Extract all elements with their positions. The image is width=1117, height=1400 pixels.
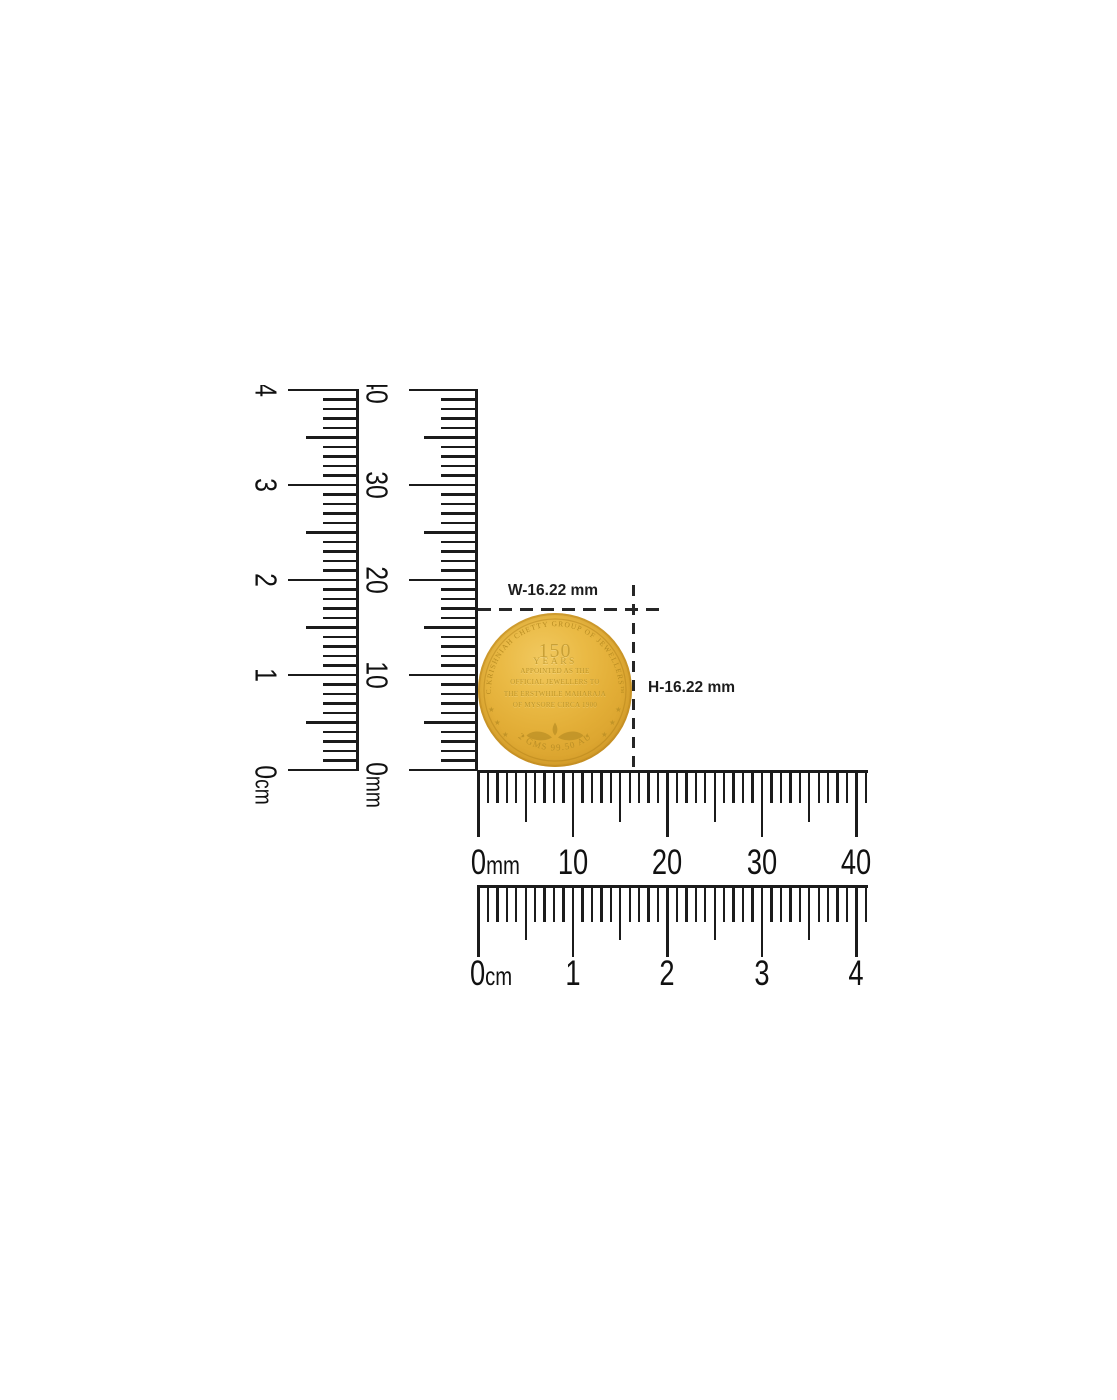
- ruler-tick: [685, 770, 687, 803]
- ruler-tick: [441, 408, 478, 410]
- vertical-rulers: 4 3 2 1 0cm 40 30 20 10 0mm: [238, 385, 482, 820]
- ruler-tick: [562, 885, 564, 922]
- ruler-tick: [441, 664, 478, 666]
- ruler-tick: [827, 885, 829, 922]
- vertical-cm-label-3: 3: [251, 476, 282, 493]
- ruler-tick: [323, 446, 359, 448]
- ruler-tick: [742, 770, 744, 803]
- ruler-tick: [323, 693, 359, 695]
- ruler-tick: [441, 493, 478, 495]
- ruler-tick: [647, 885, 649, 922]
- height-dimension-label: H-16.22 mm: [648, 680, 735, 696]
- ruler-tick: [323, 550, 359, 552]
- ruler-tick: [676, 770, 678, 803]
- ruler-tick: [638, 770, 640, 803]
- ruler-tick: [441, 702, 478, 704]
- horizontal-mm-label-0: 0mm: [464, 845, 527, 880]
- ruler-tick: [441, 588, 478, 590]
- ruler-tick: [441, 522, 478, 524]
- ruler-tick: [288, 674, 359, 676]
- ruler-tick: [323, 474, 359, 476]
- ruler-tick: [441, 740, 478, 742]
- vertical-mm-label-10: 10: [362, 658, 393, 692]
- ruler-tick: [572, 885, 574, 957]
- ruler-tick: [323, 617, 359, 619]
- ruler-tick: [323, 750, 359, 752]
- ruler-tick: [638, 885, 640, 922]
- ruler-tick: [732, 770, 734, 803]
- ruler-tick: [865, 770, 867, 803]
- horizontal-cm-label-0: 0cm: [464, 956, 518, 991]
- ruler-tick: [799, 885, 801, 922]
- ruler-tick: [770, 770, 772, 803]
- ruler-tick: [441, 512, 478, 514]
- ruler-tick: [818, 770, 820, 803]
- ruler-tick: [288, 389, 359, 391]
- ruler-tick: [610, 770, 612, 803]
- ruler-tick: [799, 770, 801, 803]
- ruler-tick: [695, 885, 697, 922]
- ruler-tick: [619, 885, 621, 940]
- coin-inscription-line: THE ERSTWHILE MAHARAJA: [478, 689, 632, 701]
- star-icon: ★: [609, 718, 616, 727]
- ruler-tick: [751, 885, 753, 922]
- vertical-mm-label-30: 30: [362, 468, 393, 502]
- horizontal-mm-label-40: 40: [837, 845, 876, 880]
- ruler-tick: [647, 770, 649, 803]
- ruler-tick: [685, 885, 687, 922]
- ruler-tick: [676, 885, 678, 922]
- ruler-tick: [780, 885, 782, 922]
- ruler-tick: [441, 683, 478, 685]
- horizontal-cm-label-2: 2: [657, 956, 676, 991]
- product-measurement-image: 4 3 2 1 0cm 40 30 20 10 0mm C.KRISHNIAH …: [0, 0, 1117, 1400]
- ruler-tick: [846, 770, 848, 803]
- ruler-tick: [323, 465, 359, 467]
- width-dimension-label: W-16.22 mm: [508, 583, 598, 599]
- coin-inscription: APPOINTED AS THE OFFICIAL JEWELLERS TO T…: [478, 666, 632, 712]
- ruler-tick: [441, 712, 478, 714]
- ruler-tick: [441, 655, 478, 657]
- ruler-tick: [780, 770, 782, 803]
- ruler-tick: [441, 427, 478, 429]
- ruler-tick: [441, 636, 478, 638]
- ruler-tick: [323, 712, 359, 714]
- ruler-tick: [581, 770, 583, 803]
- ruler-tick: [424, 626, 478, 628]
- ruler-tick: [323, 645, 359, 647]
- ruler-tick: [818, 885, 820, 922]
- ruler-tick: [323, 398, 359, 400]
- ruler-tick: [827, 770, 829, 803]
- ruler-tick: [409, 674, 478, 676]
- horizontal-mm-label-30: 30: [743, 845, 782, 880]
- ruler-tick: [629, 885, 631, 922]
- vertical-mm-label-20: 20: [362, 563, 393, 597]
- ruler-tick: [306, 721, 359, 723]
- vertical-cm-label-4: 4: [251, 385, 282, 399]
- ruler-tick: [525, 770, 527, 822]
- horizontal-cm-label-3: 3: [752, 956, 771, 991]
- star-icon: ★: [494, 718, 501, 727]
- ruler-tick: [409, 389, 478, 391]
- ruler-tick: [323, 702, 359, 704]
- ruler-tick: [855, 770, 857, 837]
- vertical-mm-label-0: 0mm: [362, 756, 393, 813]
- ruler-tick: [441, 569, 478, 571]
- ruler-tick: [323, 683, 359, 685]
- ruler-tick: [770, 885, 772, 922]
- ruler-tick: [323, 417, 359, 419]
- horizontal-mm-label-20: 20: [648, 845, 687, 880]
- horizontal-cm-label-4: 4: [846, 956, 865, 991]
- ruler-tick: [808, 885, 810, 940]
- ruler-tick: [288, 579, 359, 581]
- ruler-tick: [591, 885, 593, 922]
- ruler-tick: [441, 750, 478, 752]
- ruler-tick: [323, 503, 359, 505]
- coin-inscription-line: OFFICIAL JEWELLERS TO: [478, 677, 632, 689]
- ruler-tick: [323, 588, 359, 590]
- ruler-tick: [323, 731, 359, 733]
- ruler-tick: [323, 664, 359, 666]
- ruler-tick: [323, 560, 359, 562]
- ruler-tick: [704, 770, 706, 803]
- ruler-tick: [441, 607, 478, 609]
- ruler-tick: [323, 522, 359, 524]
- ruler-tick: [695, 770, 697, 803]
- ruler-tick: [515, 885, 517, 922]
- ruler-tick: [487, 770, 489, 803]
- ruler-tick: [808, 770, 810, 822]
- ruler-tick: [714, 885, 716, 940]
- ruler-tick: [487, 885, 489, 922]
- ruler-tick: [441, 759, 478, 761]
- ruler-tick: [761, 770, 763, 837]
- ruler-tick: [441, 465, 478, 467]
- ruler-tick: [657, 885, 659, 922]
- ruler-tick: [441, 455, 478, 457]
- horizontal-ruler-cm: 0cm 1 2 3 4: [477, 884, 877, 1004]
- ruler-tick: [534, 885, 536, 922]
- horizontal-ruler-mm: 0mm 10 20 30 40: [477, 769, 877, 889]
- ruler-tick: [543, 770, 545, 803]
- ruler-tick: [723, 770, 725, 803]
- ruler-tick: [846, 885, 848, 922]
- ruler-tick: [323, 427, 359, 429]
- ruler-tick: [714, 770, 716, 822]
- ruler-tick: [477, 885, 479, 957]
- coin-inscription-line: OF MYSORE CIRCA 1900: [478, 700, 632, 712]
- ruler-tick: [543, 885, 545, 922]
- ruler-tick: [441, 560, 478, 562]
- ruler-tick: [306, 626, 359, 628]
- ruler-tick: [496, 770, 498, 803]
- ruler-tick: [761, 885, 763, 957]
- ruler-tick: [591, 770, 593, 803]
- coin-inscription-line: APPOINTED AS THE: [478, 666, 632, 678]
- horizontal-cm-label-1: 1: [563, 956, 582, 991]
- ruler-tick: [323, 655, 359, 657]
- ruler-tick: [441, 550, 478, 552]
- ruler-tick: [323, 512, 359, 514]
- ruler-tick: [657, 770, 659, 803]
- ruler-tick: [477, 770, 479, 837]
- ruler-tick: [323, 408, 359, 410]
- ruler-tick: [409, 484, 478, 486]
- ruler-tick: [610, 885, 612, 922]
- ruler-tick: [525, 885, 527, 940]
- ruler-tick: [441, 617, 478, 619]
- ruler-tick: [441, 598, 478, 600]
- ruler-tick: [789, 770, 791, 803]
- ruler-tick: [553, 770, 555, 803]
- ruler-tick: [789, 885, 791, 922]
- ruler-tick: [441, 731, 478, 733]
- ruler-tick: [865, 885, 867, 922]
- ruler-tick: [600, 770, 602, 803]
- ruler-tick: [441, 398, 478, 400]
- width-measurement-line: [478, 608, 663, 611]
- ruler-tick: [288, 484, 359, 486]
- ruler-tick: [441, 645, 478, 647]
- star-icon: ★: [601, 730, 608, 739]
- ruler-tick: [619, 770, 621, 822]
- ruler-tick: [323, 740, 359, 742]
- horizontal-mm-label-10: 10: [554, 845, 593, 880]
- ruler-tick: [306, 531, 359, 533]
- ruler-tick: [572, 770, 574, 837]
- ruler-tick: [629, 770, 631, 803]
- ruler-tick: [323, 598, 359, 600]
- ruler-tick: [723, 885, 725, 922]
- ruler-tick: [506, 770, 508, 803]
- ruler-tick: [506, 885, 508, 922]
- ruler-tick: [323, 607, 359, 609]
- ruler-tick: [441, 503, 478, 505]
- ruler-tick: [424, 436, 478, 438]
- flourish-ornament-icon: [522, 723, 589, 741]
- ruler-tick: [441, 693, 478, 695]
- ruler-tick: [855, 885, 857, 957]
- ruler-tick: [424, 531, 478, 533]
- vertical-cm-label-2: 2: [251, 571, 282, 588]
- ruler-tick: [441, 446, 478, 448]
- vertical-cm-label-1: 1: [251, 666, 282, 683]
- ruler-tick: [751, 770, 753, 803]
- ruler-tick: [562, 770, 564, 803]
- ruler-tick: [836, 885, 838, 922]
- vertical-mm-label-40: 40: [362, 385, 393, 407]
- ruler-tick: [836, 770, 838, 803]
- ruler-tick: [424, 721, 478, 723]
- ruler-tick: [666, 885, 668, 957]
- ruler-tick: [666, 770, 668, 837]
- ruler-tick: [409, 579, 478, 581]
- ruler-tick: [323, 569, 359, 571]
- ruler-tick: [553, 885, 555, 922]
- gold-coin: C.KRISHNIAH CHETTY GROUP OF JEWELLERS™ 2…: [478, 613, 632, 767]
- vertical-cm-label-0: 0cm: [251, 760, 282, 809]
- ruler-tick: [441, 417, 478, 419]
- ruler-tick: [306, 436, 359, 438]
- ruler-tick: [496, 885, 498, 922]
- ruler-tick: [323, 541, 359, 543]
- ruler-tick: [323, 759, 359, 761]
- ruler-tick: [323, 636, 359, 638]
- ruler-tick: [704, 885, 706, 922]
- ruler-tick: [323, 493, 359, 495]
- ruler-tick: [600, 885, 602, 922]
- ruler-tick: [581, 885, 583, 922]
- star-icon: ★: [502, 730, 509, 739]
- ruler-tick: [534, 770, 536, 803]
- height-measurement-line: [632, 585, 635, 767]
- ruler-tick: [288, 769, 359, 771]
- ruler-tick: [732, 885, 734, 922]
- ruler-tick: [441, 541, 478, 543]
- ruler-tick: [742, 885, 744, 922]
- ruler-tick: [409, 769, 478, 771]
- ruler-tick: [441, 474, 478, 476]
- ruler-tick: [323, 455, 359, 457]
- ruler-tick: [515, 770, 517, 803]
